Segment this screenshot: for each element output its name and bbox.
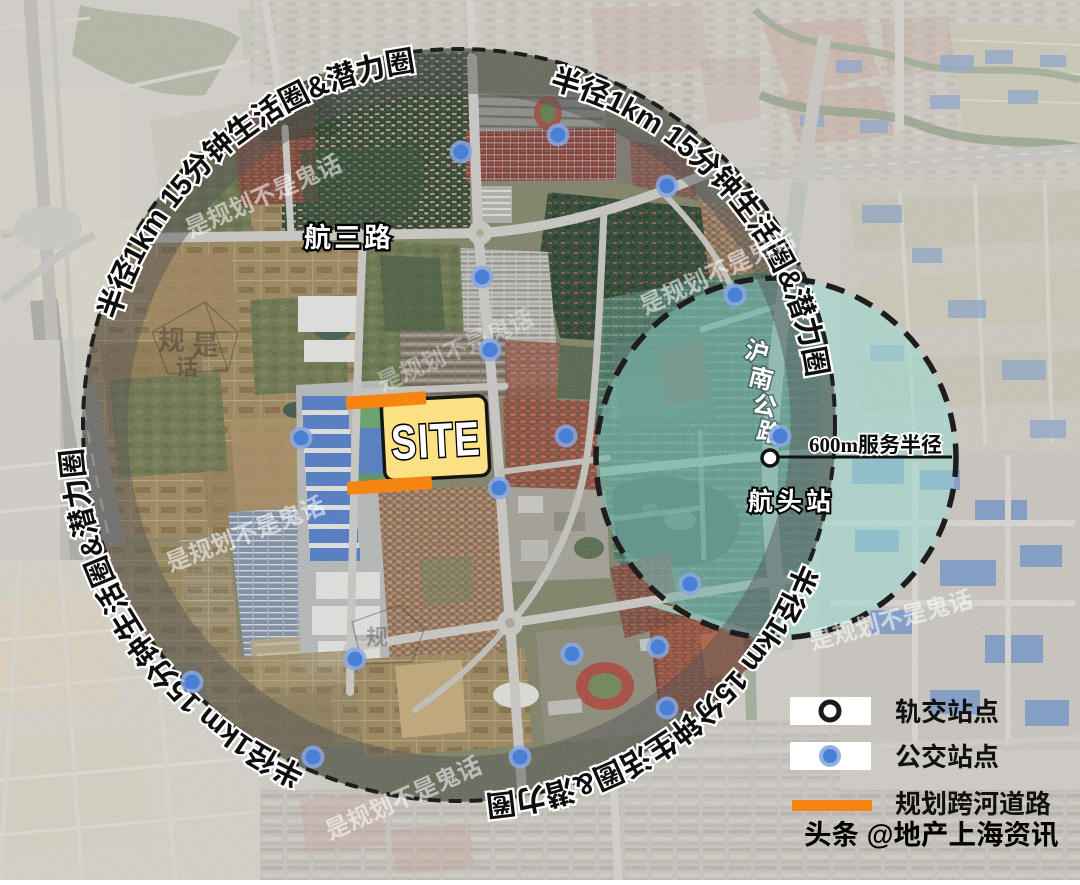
svg-text:规: 规 <box>366 625 388 650</box>
svg-text:航头站: 航头站 <box>748 488 835 516</box>
svg-text:航三路: 航三路 <box>304 223 394 253</box>
svg-text:规: 规 <box>158 326 185 356</box>
svg-text:话: 话 <box>176 355 198 380</box>
svg-text:轨交站点: 轨交站点 <box>895 697 999 727</box>
svg-text:头条 @地产上海资讯: 头条 @地产上海资讯 <box>804 819 1058 850</box>
svg-text:600m服务半径: 600m服务半径 <box>809 433 942 457</box>
svg-text:SITE: SITE <box>390 413 483 471</box>
svg-text:规划跨河道路: 规划跨河道路 <box>895 789 1051 819</box>
svg-text:公交站点: 公交站点 <box>895 742 999 772</box>
